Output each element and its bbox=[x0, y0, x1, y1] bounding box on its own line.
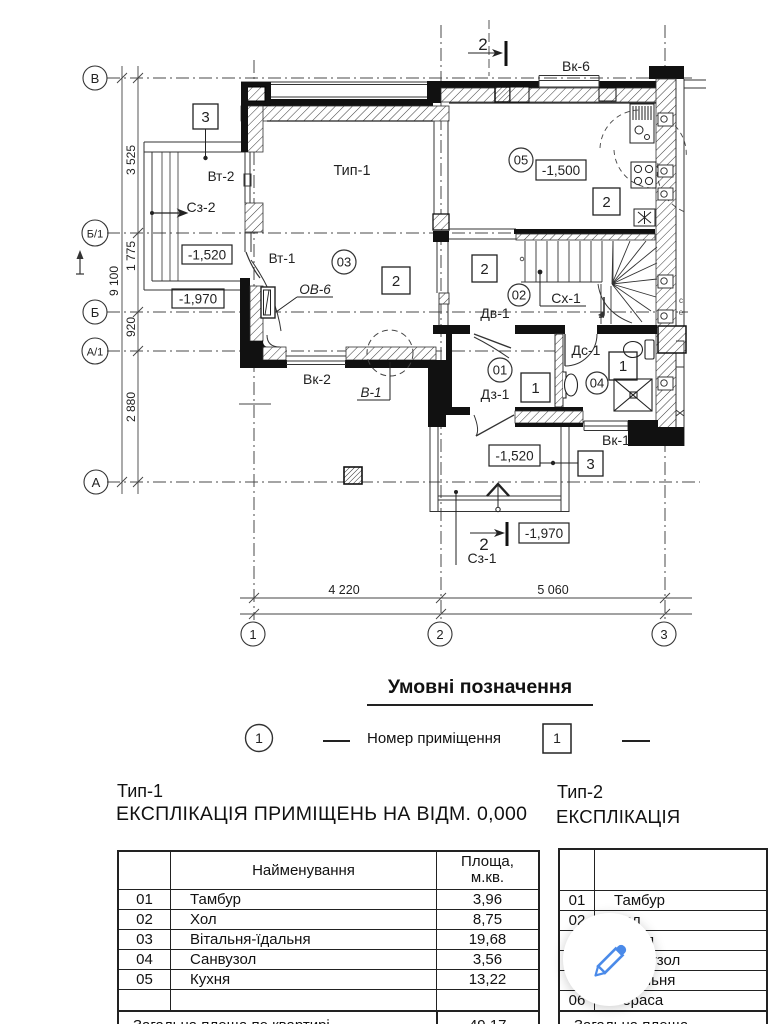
svg-text:Вк-2: Вк-2 bbox=[303, 371, 331, 387]
svg-text:-1,520: -1,520 bbox=[495, 449, 533, 464]
svg-text:В-1: В-1 bbox=[360, 385, 381, 400]
svg-text:1 775: 1 775 bbox=[124, 241, 138, 271]
svg-text:3: 3 bbox=[660, 627, 667, 642]
svg-text:1: 1 bbox=[255, 730, 263, 746]
svg-text:4 220: 4 220 bbox=[328, 583, 359, 597]
svg-text:5 060: 5 060 bbox=[537, 583, 568, 597]
svg-text:А/1: А/1 bbox=[87, 347, 104, 359]
svg-text:2: 2 bbox=[479, 535, 488, 554]
svg-text:е: е bbox=[679, 308, 684, 317]
svg-text:1: 1 bbox=[553, 730, 561, 746]
svg-text:01: 01 bbox=[493, 363, 507, 378]
svg-text:Сх-1: Сх-1 bbox=[551, 290, 581, 306]
svg-text:2 880: 2 880 bbox=[124, 392, 138, 422]
svg-text:920: 920 bbox=[124, 317, 138, 337]
svg-text:2: 2 bbox=[392, 273, 400, 290]
svg-text:05: 05 bbox=[514, 153, 528, 168]
svg-text:Тип-1: Тип-1 bbox=[333, 163, 370, 179]
svg-text:2: 2 bbox=[436, 627, 443, 642]
svg-text:04: 04 bbox=[590, 376, 604, 391]
svg-text:2: 2 bbox=[602, 194, 610, 211]
svg-text:-1,500: -1,500 bbox=[542, 163, 580, 178]
svg-text:1: 1 bbox=[249, 627, 256, 642]
svg-text:1: 1 bbox=[619, 358, 627, 375]
svg-text:Б/1: Б/1 bbox=[87, 229, 103, 241]
svg-text:Дз-1: Дз-1 bbox=[481, 386, 510, 402]
svg-text:9 100: 9 100 bbox=[107, 266, 121, 296]
svg-text:-1,970: -1,970 bbox=[525, 526, 563, 541]
svg-text:2: 2 bbox=[478, 35, 487, 54]
svg-text:03: 03 bbox=[337, 255, 351, 270]
svg-text:А: А bbox=[92, 475, 101, 490]
svg-text:В: В bbox=[91, 71, 100, 86]
svg-text:ОВ-6: ОВ-6 bbox=[299, 282, 331, 297]
svg-text:Дв-1: Дв-1 bbox=[480, 305, 510, 321]
svg-text:02: 02 bbox=[512, 288, 526, 303]
svg-text:1: 1 bbox=[531, 380, 539, 397]
svg-text:-1,970: -1,970 bbox=[179, 292, 217, 307]
svg-text:Сз-2: Сз-2 bbox=[187, 199, 216, 215]
svg-text:-1,520: -1,520 bbox=[188, 248, 226, 263]
svg-text:Вт-2: Вт-2 bbox=[208, 169, 235, 184]
svg-text:2: 2 bbox=[480, 261, 488, 278]
svg-text:Вк-1: Вк-1 bbox=[602, 432, 630, 448]
svg-text:3: 3 bbox=[201, 109, 209, 126]
svg-text:3 525: 3 525 bbox=[124, 145, 138, 175]
svg-text:с: с bbox=[679, 296, 683, 305]
svg-text:Б: Б bbox=[91, 305, 100, 320]
svg-text:Вт-1: Вт-1 bbox=[269, 251, 296, 266]
svg-text:3: 3 bbox=[586, 456, 594, 473]
svg-text:Дс-1: Дс-1 bbox=[572, 342, 601, 358]
svg-text:Вк-6: Вк-6 bbox=[562, 58, 590, 74]
